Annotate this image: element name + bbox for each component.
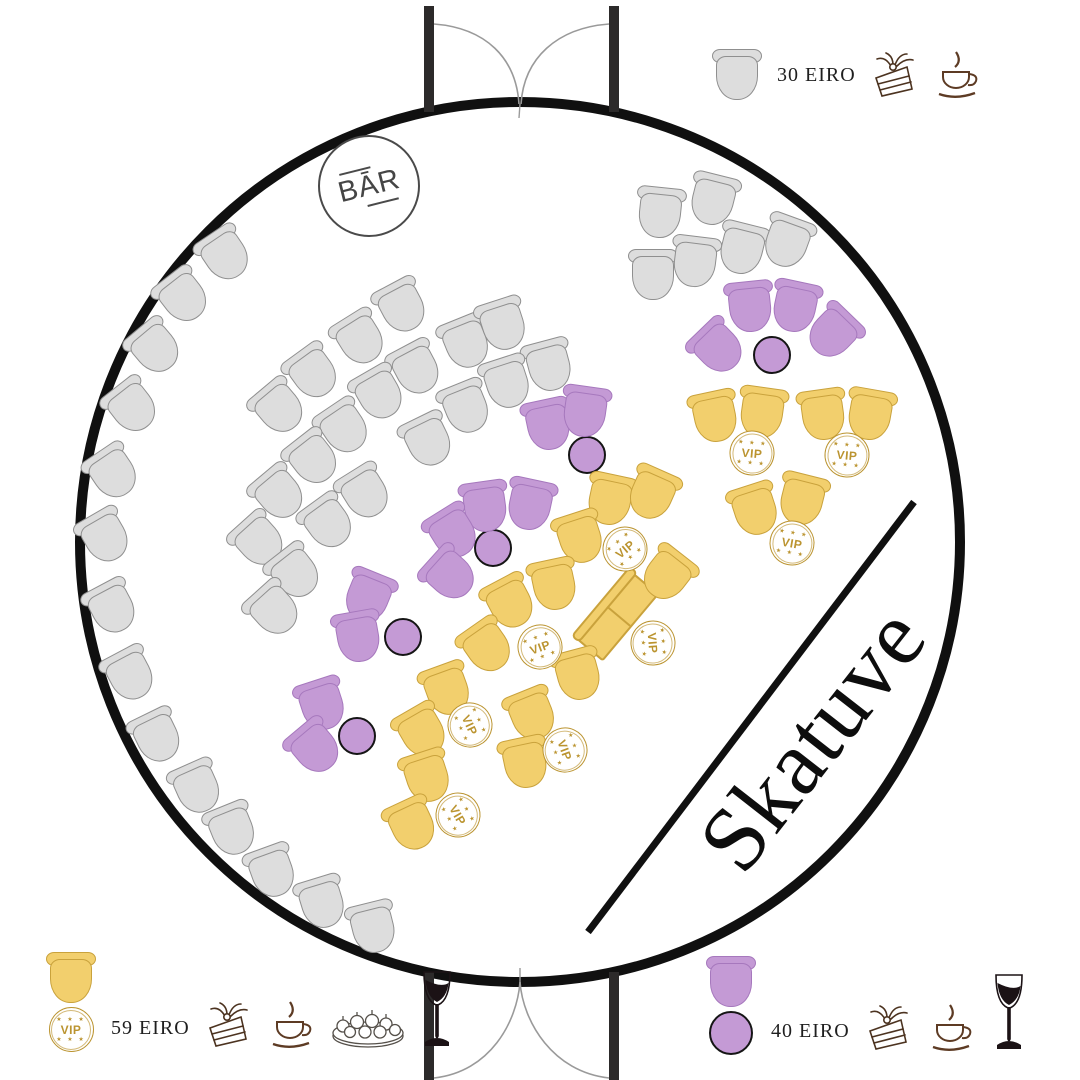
seat-standard[interactable] bbox=[78, 573, 147, 642]
vip-label: VIP bbox=[836, 448, 858, 462]
perk-icons bbox=[205, 970, 457, 1050]
legend-vip-tier: ★ ★ ★ VIP ★ ★ ★ 59 EIRO bbox=[46, 952, 457, 1052]
vip-stars: ★ ★ ★ bbox=[56, 1017, 85, 1023]
sofa-cushion-divider bbox=[607, 606, 631, 627]
vip-stars: ★ ★ ★ bbox=[56, 1037, 85, 1043]
chair-body bbox=[716, 56, 758, 100]
gold-seat-icon bbox=[46, 952, 96, 1004]
chair-body bbox=[50, 959, 92, 1003]
perk-icons bbox=[871, 50, 985, 100]
coffee-icon bbox=[931, 50, 985, 100]
coffee-icon bbox=[925, 1003, 979, 1053]
purple-seat-icon bbox=[706, 956, 756, 1008]
cake-icon bbox=[205, 1000, 255, 1050]
legend-standard-tier: 30 EIRO bbox=[712, 38, 985, 112]
wine-icon bbox=[989, 973, 1029, 1053]
seat-table-tier[interactable] bbox=[329, 607, 387, 667]
gray-seat-icon bbox=[712, 49, 762, 101]
seat-standard[interactable] bbox=[755, 209, 820, 275]
vip-stars: ★ ★ ★ bbox=[831, 461, 861, 470]
perk-icons bbox=[865, 973, 1029, 1053]
vip-label: VIP bbox=[61, 1024, 82, 1036]
seat-standard[interactable] bbox=[96, 640, 165, 709]
bar-logo-inner: BĀR bbox=[334, 160, 404, 213]
seat-standard[interactable] bbox=[96, 371, 167, 443]
chair-body bbox=[710, 963, 752, 1007]
chair-body bbox=[561, 390, 609, 439]
wine-icon bbox=[417, 970, 457, 1050]
canapes-icon bbox=[329, 992, 407, 1050]
chair-body bbox=[504, 482, 554, 534]
round-table bbox=[753, 336, 791, 374]
vip-badge-icon: ★ ★ ★ VIP ★ ★ ★ bbox=[49, 1007, 94, 1052]
vip-stars: ★ ★ ★ bbox=[736, 459, 766, 468]
round-table bbox=[384, 618, 422, 656]
seat-standard[interactable] bbox=[342, 897, 403, 960]
chair-body bbox=[553, 651, 605, 704]
chair-body bbox=[334, 615, 383, 666]
seat-standard[interactable] bbox=[78, 437, 149, 508]
seat-standard[interactable] bbox=[123, 703, 191, 772]
price-label: 59 EIRO bbox=[111, 1017, 190, 1040]
table-seat-stack bbox=[706, 956, 756, 1055]
legend-table-tier: 40 EIRO bbox=[706, 956, 1029, 1055]
seat-layer: ★ ★ ★VIP★ ★ ★★ ★ ★VIP★ ★ ★★ ★ ★VIP★ ★ ★★… bbox=[0, 0, 1080, 1080]
coffee-icon bbox=[265, 1000, 319, 1050]
price-label: 40 EIRO bbox=[771, 1020, 850, 1043]
chair-body bbox=[348, 904, 399, 957]
vip-seat-stack: ★ ★ ★ VIP ★ ★ ★ bbox=[46, 952, 96, 1052]
cake-icon bbox=[865, 1003, 915, 1053]
seat-standard[interactable] bbox=[70, 502, 139, 572]
chair-body bbox=[691, 394, 741, 446]
event-seating-map: ★ ★ ★VIP★ ★ ★★ ★ ★VIP★ ★ ★★ ★ ★VIP★ ★ ★★… bbox=[0, 0, 1080, 1080]
price-label: 30 EIRO bbox=[777, 64, 856, 87]
vip-label: VIP bbox=[646, 632, 660, 654]
cake-icon bbox=[871, 50, 921, 100]
bar-label: BĀR bbox=[335, 164, 403, 207]
vip-badge: ★ ★ ★VIP★ ★ ★ bbox=[629, 619, 678, 668]
seat-table-tier[interactable] bbox=[500, 474, 560, 535]
seat-table-tier[interactable] bbox=[557, 383, 614, 441]
bar-logo: BĀR bbox=[318, 135, 420, 237]
round-table-icon bbox=[709, 1011, 753, 1055]
vip-label: VIP bbox=[741, 446, 763, 460]
